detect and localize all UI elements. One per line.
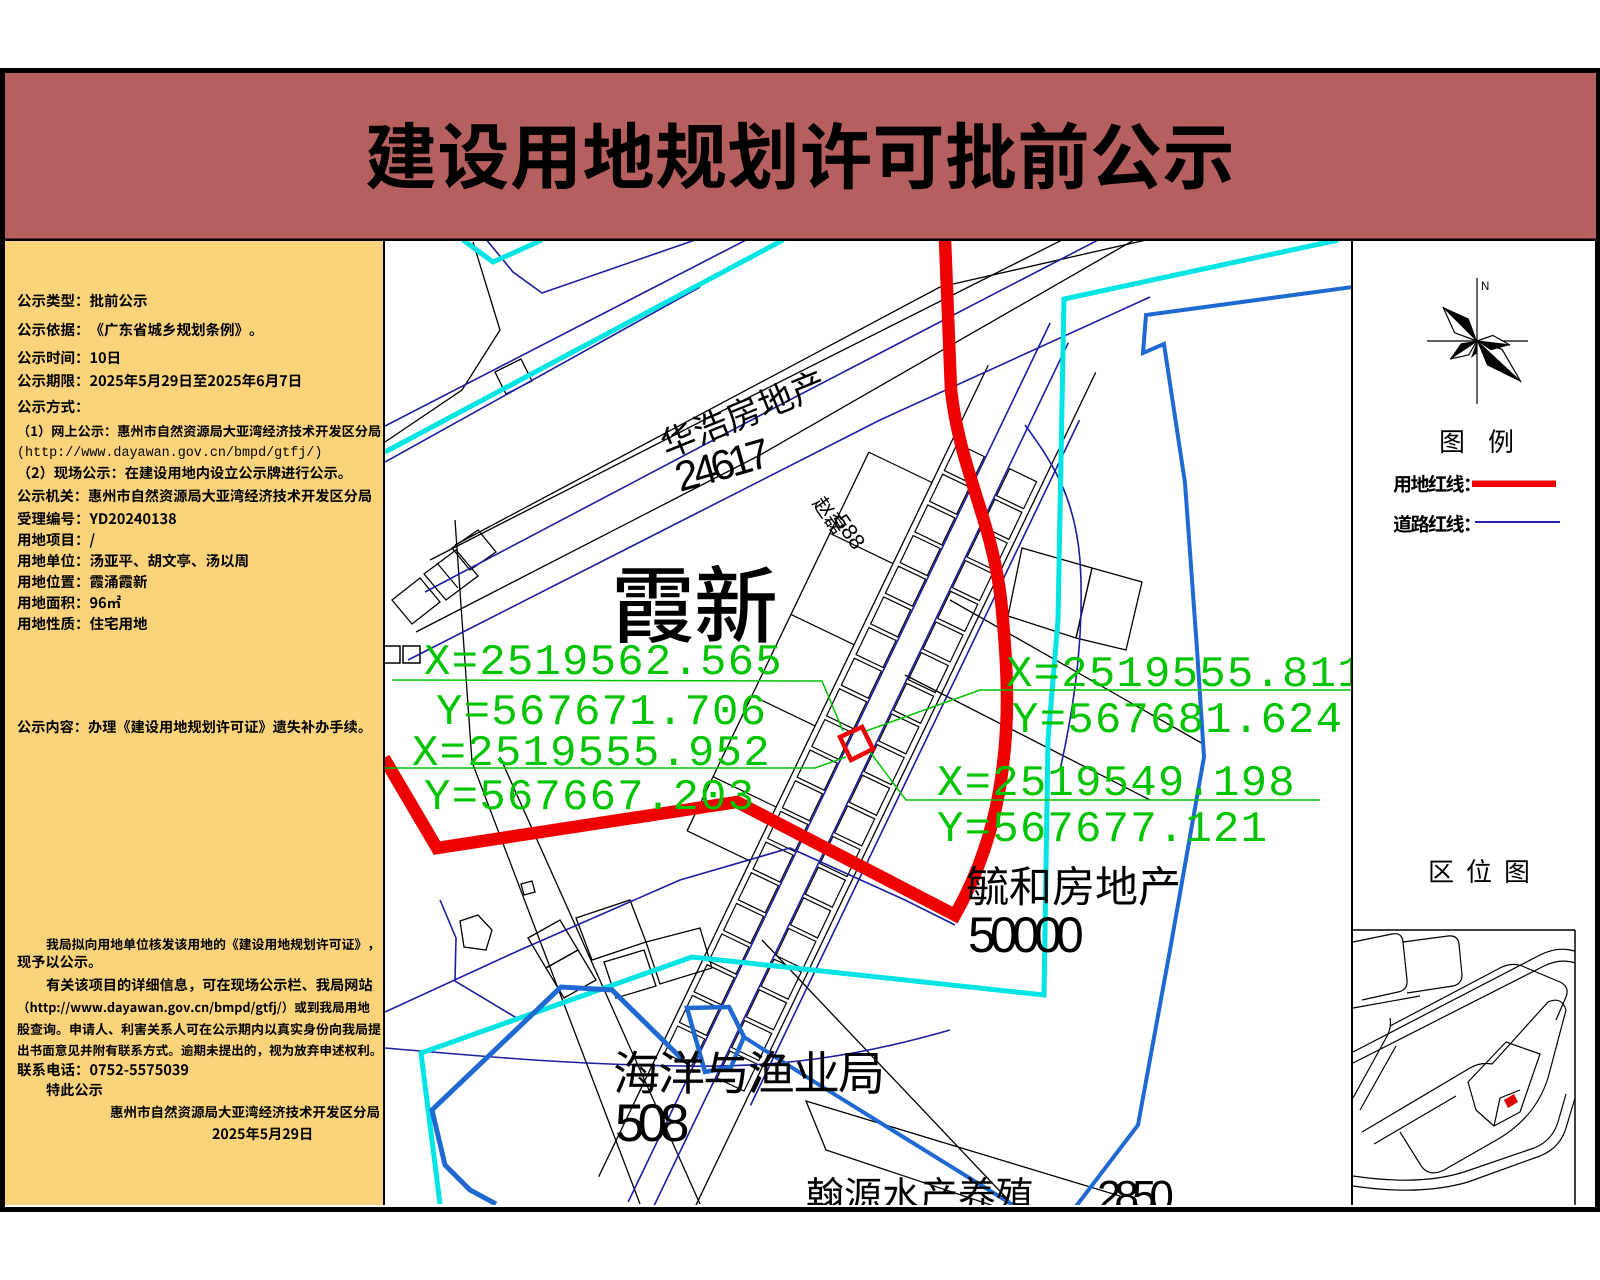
- svg-text:X=2519555.952: X=2519555.952: [412, 729, 771, 779]
- svg-text:50000: 50000: [968, 907, 1082, 963]
- svg-text:Y=567677.121: Y=567677.121: [937, 805, 1268, 855]
- svg-text:(http://www.dayawan.gov.cn/bmp: (http://www.dayawan.gov.cn/bmpd/gtfj/): [17, 446, 322, 461]
- svg-text:X=2519549.198: X=2519549.198: [937, 759, 1296, 809]
- svg-text:Y=567681.624: Y=567681.624: [1012, 696, 1343, 746]
- svg-text:2850: 2850: [1097, 1172, 1172, 1221]
- svg-text:Y=567667.203: Y=567667.203: [424, 773, 755, 823]
- svg-text:508: 508: [615, 1094, 688, 1153]
- svg-text:N: N: [1481, 281, 1489, 293]
- svg-text:X=2519555.811: X=2519555.811: [1006, 650, 1365, 700]
